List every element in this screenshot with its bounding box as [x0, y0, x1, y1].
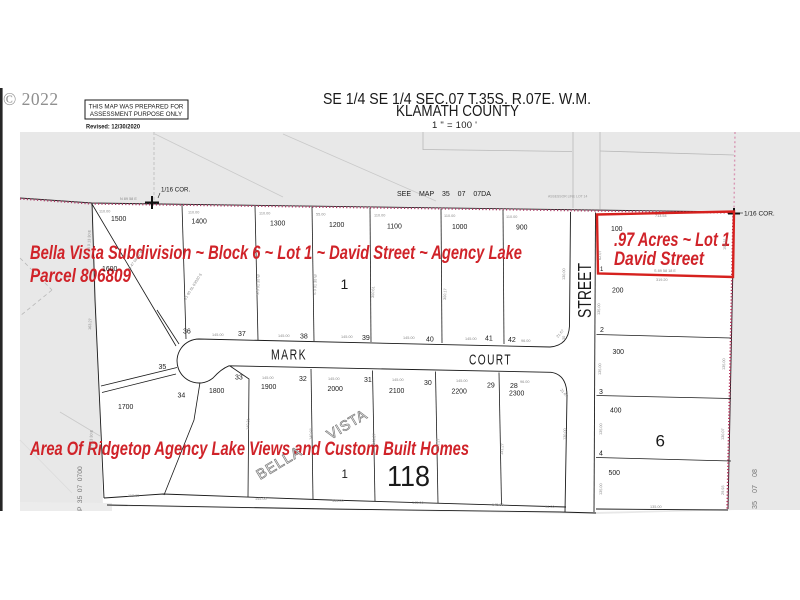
svg-text:200: 200 [612, 288, 624, 295]
svg-text:1000: 1000 [452, 224, 467, 231]
svg-text:135.00: 135.00 [597, 303, 601, 315]
svg-text:1300: 1300 [270, 221, 285, 228]
svg-text:P 35 07 0700: P 35 07 0700 [77, 466, 84, 511]
svg-text:29: 29 [487, 383, 495, 390]
svg-text:N 89 58 E: N 89 58 E [120, 197, 137, 201]
svg-text:32: 32 [299, 376, 307, 383]
svg-text:KLAMATH COUNTY: KLAMATH COUNTY [396, 103, 519, 120]
svg-text:ASSESSOR LINE LOT 14: ASSESSOR LINE LOT 14 [548, 195, 587, 199]
svg-text:39: 39 [362, 335, 370, 342]
svg-text:140.97: 140.97 [309, 428, 313, 440]
svg-text:2000: 2000 [328, 386, 343, 393]
svg-text:145.00: 145.00 [456, 379, 468, 383]
svg-text:145.00: 145.00 [212, 333, 224, 337]
svg-text:110.00: 110.00 [506, 215, 517, 219]
svg-text:35 07 08: 35 07 08 [750, 469, 759, 509]
svg-text:145.00: 145.00 [412, 501, 424, 505]
svg-text:David Street: David Street [614, 249, 705, 270]
svg-text:4: 4 [599, 451, 603, 458]
svg-text:1600: 1600 [102, 266, 117, 273]
svg-text:110.00: 110.00 [188, 211, 199, 215]
svg-text:41: 41 [485, 336, 493, 343]
svg-text:ASSESSMENT PURPOSE ONLY: ASSESSMENT PURPOSE ONLY [90, 111, 182, 118]
svg-text:1: 1 [341, 276, 349, 292]
svg-text:1100: 1100 [387, 224, 402, 231]
svg-text:135.00: 135.00 [722, 358, 726, 370]
svg-text:33: 33 [235, 375, 243, 382]
svg-text:900: 900 [516, 225, 528, 232]
svg-text:135.00: 135.00 [599, 423, 603, 435]
svg-text:1700: 1700 [118, 404, 133, 411]
svg-text:1800: 1800 [209, 388, 224, 395]
svg-text:140.31: 140.31 [246, 418, 250, 430]
svg-text:38: 38 [300, 334, 308, 341]
svg-text:1/16 COR.: 1/16 COR. [744, 211, 775, 218]
svg-text:145.00: 145.00 [492, 503, 504, 507]
svg-text:N 0 13 30 E: N 0 13 30 E [89, 429, 94, 450]
svg-text:130.00: 130.00 [562, 268, 566, 280]
svg-text:145.00: 145.00 [341, 335, 353, 339]
svg-text:40: 40 [426, 337, 434, 344]
svg-text:1/16 COR.: 1/16 COR. [161, 187, 191, 194]
svg-text:135.00: 135.00 [650, 505, 662, 509]
svg-text:2: 2 [600, 327, 604, 334]
svg-text:145.00: 145.00 [403, 336, 415, 340]
svg-text:.97 Acres ~ Lot 1: .97 Acres ~ Lot 1 [614, 230, 730, 251]
svg-text:3: 3 [599, 389, 603, 396]
svg-text:110.00: 110.00 [374, 214, 385, 218]
svg-text:SEE MAP 35 07 07DA: SEE MAP 35 07 07DA [397, 191, 491, 198]
svg-text:118: 118 [387, 461, 430, 493]
svg-text:500: 500 [609, 470, 621, 477]
svg-text:6: 6 [656, 432, 665, 451]
svg-text:COURT: COURT [469, 353, 512, 369]
svg-text:158.31: 158.31 [723, 238, 727, 250]
svg-text:145.00: 145.00 [332, 499, 344, 503]
svg-text:62.07: 62.07 [598, 250, 602, 260]
svg-text:35: 35 [159, 364, 167, 371]
svg-text:1200: 1200 [329, 222, 344, 229]
svg-text:130.00: 130.00 [563, 428, 567, 440]
svg-text:163.27: 163.27 [88, 318, 92, 330]
svg-text:1500: 1500 [111, 216, 126, 223]
svg-text:135.00: 135.00 [598, 363, 602, 375]
svg-text:55.00: 55.00 [316, 213, 326, 217]
svg-text:145.00: 145.00 [392, 378, 404, 382]
svg-text:37: 37 [238, 331, 246, 338]
svg-text:713.54: 713.54 [655, 214, 667, 218]
svg-text:145.00: 145.00 [328, 377, 340, 381]
svg-text:34: 34 [178, 393, 186, 400]
svg-text:© 2022: © 2022 [3, 89, 59, 109]
svg-text:2200: 2200 [452, 389, 467, 396]
svg-text:96.00: 96.00 [545, 505, 555, 509]
svg-text:141.27: 141.27 [500, 443, 504, 455]
svg-text:145.00: 145.00 [262, 376, 274, 380]
svg-text:Area Of Ridgetop Agency Lake V: Area Of Ridgetop Agency Lake Views and C… [29, 439, 469, 460]
svg-text:S 0 01 30 W: S 0 01 30 W [313, 274, 318, 295]
svg-text:145.00: 145.00 [278, 334, 290, 338]
svg-text:1 " = 100 ': 1 " = 100 ' [432, 120, 477, 131]
svg-text:110.00: 110.00 [99, 210, 110, 214]
svg-text:STREET: STREET [575, 263, 595, 318]
svg-text:319.20: 319.20 [656, 278, 668, 282]
svg-text:141.27: 141.27 [436, 438, 440, 450]
svg-text:96.00: 96.00 [521, 339, 531, 343]
svg-text:110.00: 110.00 [259, 212, 270, 216]
svg-text:2100: 2100 [389, 388, 404, 395]
svg-text:S 89 58 18 E: S 89 58 18 E [654, 269, 676, 273]
svg-text:300.17: 300.17 [443, 288, 447, 300]
svg-text:28: 28 [510, 383, 518, 390]
svg-text:113.65: 113.65 [128, 494, 139, 498]
svg-text:THIS MAP WAS PREPARED FOR: THIS MAP WAS PREPARED FOR [89, 104, 184, 111]
svg-text:96.00: 96.00 [520, 380, 530, 384]
svg-text:31: 31 [364, 377, 372, 384]
svg-text:1900: 1900 [261, 384, 276, 391]
svg-text:N 0 13 30 E: N 0 13 30 E [87, 229, 92, 250]
svg-text:36: 36 [183, 329, 191, 336]
svg-text:100: 100 [611, 226, 623, 233]
svg-text:Bella Vista Subdivision ~ Bloc: Bella Vista Subdivision ~ Block 6 ~ Lot … [30, 243, 522, 264]
svg-text:300: 300 [613, 349, 625, 356]
svg-text:29.93: 29.93 [721, 485, 725, 495]
svg-text:145.00: 145.00 [255, 497, 267, 501]
svg-text:S 0 01 30 W: S 0 01 30 W [256, 274, 261, 295]
svg-text:110.00: 110.00 [444, 214, 455, 218]
svg-text:Revised: 12/30/2020: Revised: 12/30/2020 [86, 124, 140, 131]
svg-text:145.00: 145.00 [465, 337, 477, 341]
svg-text:135.00: 135.00 [599, 483, 603, 495]
svg-text:2300: 2300 [509, 391, 524, 398]
svg-text:1400: 1400 [192, 219, 207, 226]
svg-text:30: 30 [562, 336, 566, 340]
svg-text:300.61: 300.61 [371, 286, 375, 298]
svg-text:30: 30 [424, 380, 432, 387]
svg-text:400: 400 [610, 408, 622, 415]
svg-text:42: 42 [508, 337, 516, 344]
svg-text:MARK: MARK [271, 348, 307, 364]
svg-text:1: 1 [342, 469, 348, 481]
svg-text:130.07: 130.07 [721, 428, 725, 440]
svg-text:141.27: 141.27 [372, 433, 376, 445]
